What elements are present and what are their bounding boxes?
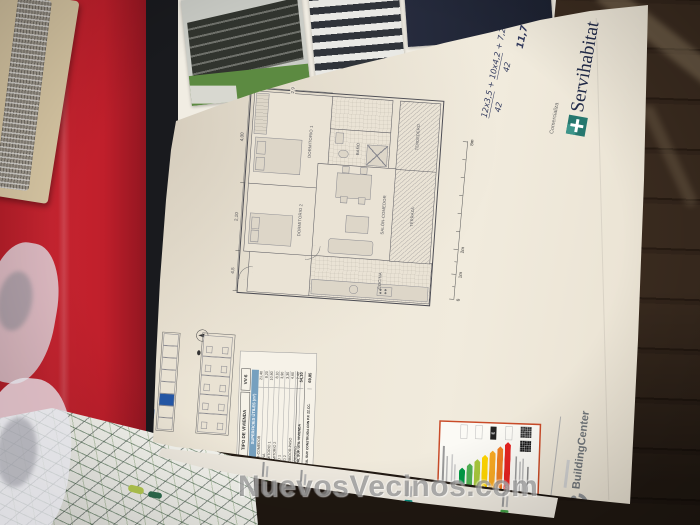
toilet xyxy=(338,150,349,159)
photo-of-floorplan-sheet: 12x3,5 + 10x4,2 + 7,2x1,5 42 42 11,7 Com… xyxy=(0,0,700,525)
room-hall xyxy=(247,251,313,296)
room-bath-2 xyxy=(330,96,393,133)
sofa xyxy=(328,238,374,256)
chair xyxy=(358,197,365,204)
registry-code-square xyxy=(520,427,531,438)
pillow xyxy=(256,141,266,155)
footer-small-text-line xyxy=(564,460,570,488)
surfaces-table: TIPO DE VIVIENDA VV-6 SUPERFICIES ÚTILES… xyxy=(236,352,316,473)
scale-label-0: 0 xyxy=(455,299,460,302)
dimension-label: 2,9 xyxy=(290,86,295,94)
servihabitat-logo-icon xyxy=(566,115,588,137)
comercializa-label: Comercializa xyxy=(549,102,560,134)
scale-label-1m: 1m xyxy=(457,272,463,279)
servihabitat-branding: Comercializa Servihabitat xyxy=(544,3,611,144)
plus-sign: + xyxy=(494,42,505,51)
current-rating-box: E xyxy=(490,427,496,440)
key-plan-strip-b xyxy=(195,333,235,436)
rating-box xyxy=(475,425,482,439)
plastic-bag-contents xyxy=(0,268,37,333)
pillow xyxy=(250,230,259,243)
floor-plan: DORMITORIO 1 DORMITORIO 2 BAÑO COCINA SA… xyxy=(227,84,457,323)
handwritten-result: 11,7 xyxy=(514,24,530,49)
fraction-denominator-2: 42 xyxy=(501,61,512,73)
key-plan-strip-a xyxy=(156,332,181,432)
room-label-bath: BAÑO xyxy=(355,143,361,156)
total-label: TOTAL SUP. CONSTRUIDA CON P.P. ZZ.CC. xyxy=(305,389,311,470)
pillow xyxy=(255,157,265,171)
address-label-strip xyxy=(0,0,52,191)
qr-code xyxy=(520,441,531,452)
scale-label-2m: 2m xyxy=(460,247,466,254)
rating-box xyxy=(505,426,512,440)
total-value: 54,10 xyxy=(299,371,304,389)
fraction-numerator-2: 10x4,2 xyxy=(487,51,503,80)
plus-sign: + xyxy=(485,80,496,89)
shower xyxy=(366,145,388,167)
chair xyxy=(360,167,367,174)
cloth-pattern-accent xyxy=(127,484,144,495)
coffee-table xyxy=(345,215,369,234)
chair xyxy=(340,196,347,203)
fraction-denominator-1: 42 xyxy=(493,101,504,113)
table-unit-code: VV-6 xyxy=(241,368,251,390)
highlighted-unit xyxy=(159,393,175,406)
fraction-numerator-1: 12x3,5 xyxy=(479,89,495,118)
dimension-label: 2,10 xyxy=(234,212,240,221)
rating-box xyxy=(460,424,467,438)
scale-label-8m: 8m xyxy=(469,139,475,146)
pillow xyxy=(251,217,260,230)
cloth-pattern-accent xyxy=(148,491,163,499)
chair xyxy=(342,166,349,173)
dimension-label: 4,5 xyxy=(230,267,235,274)
watermark: NuevosVecinos.com xyxy=(238,470,538,504)
buildingcenter-wordmark: BuildingCenter xyxy=(570,410,592,490)
total-value: 69,85 xyxy=(307,372,312,390)
walkway xyxy=(190,86,238,104)
site-key-plan xyxy=(147,327,239,438)
table-total-row: TOTAL SUP. CONSTRUIDA CON P.P. ZZ.CC. 69… xyxy=(301,371,314,470)
dimension-label: 4,00 xyxy=(239,132,245,141)
plastic-wrap-contents xyxy=(0,415,40,489)
bath-sink xyxy=(335,132,344,144)
